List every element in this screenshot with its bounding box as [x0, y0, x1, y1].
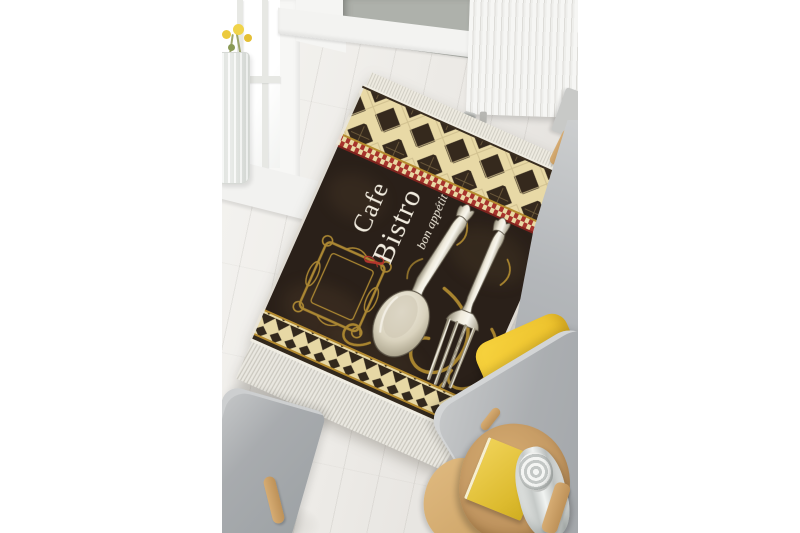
rolled-paper [515, 448, 558, 495]
flower-vase [222, 52, 250, 184]
window-mullion [262, 0, 268, 168]
room-photo: Cafe Bistro bon appétit ℓ [222, 0, 578, 533]
flower [244, 34, 252, 42]
flower [233, 24, 244, 35]
product-photo-canvas: Cafe Bistro bon appétit ℓ [0, 0, 800, 533]
flower-leaf [228, 44, 235, 51]
flower [222, 30, 231, 39]
rug-accent-glyph: ℓ [358, 255, 391, 269]
